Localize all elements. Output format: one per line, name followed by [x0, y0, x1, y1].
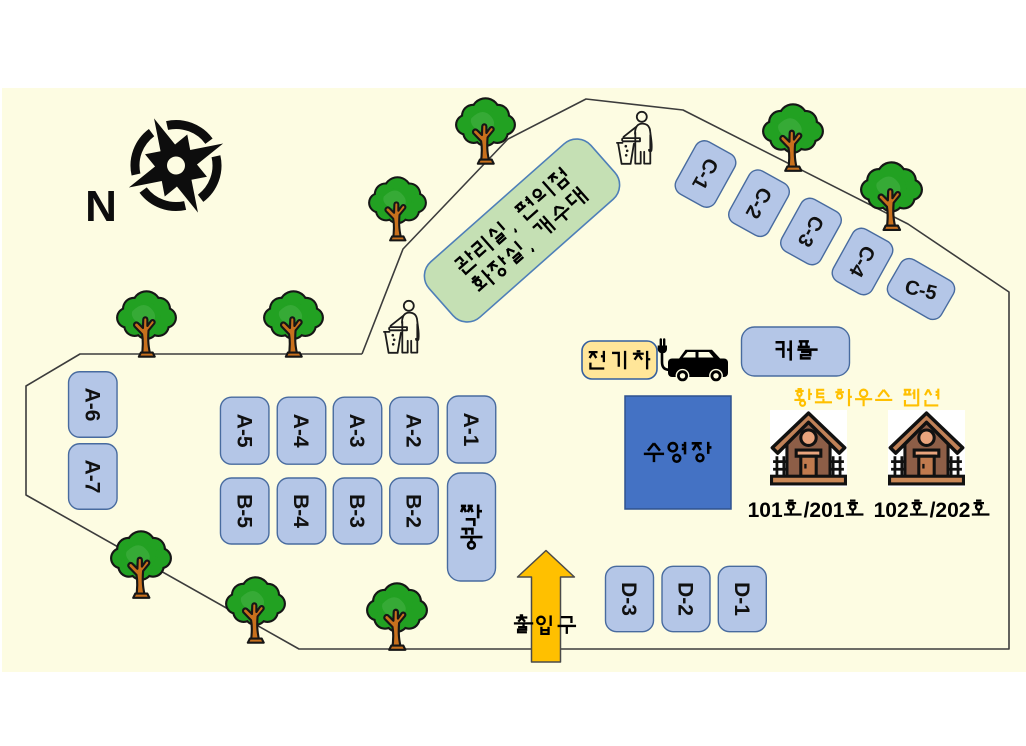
svg-text:A-6: A-6: [80, 388, 103, 422]
svg-text:B-2: B-2: [402, 494, 425, 528]
svg-text:D-2: D-2: [674, 582, 697, 616]
svg-text:D-3: D-3: [617, 582, 640, 616]
svg-text:A-5: A-5: [232, 414, 255, 448]
svg-text:/201: /201: [804, 499, 845, 522]
svg-text:N: N: [85, 182, 117, 231]
svg-text:A-1: A-1: [459, 413, 482, 447]
svg-text:102: 102: [874, 499, 909, 522]
svg-text:B-3: B-3: [345, 494, 368, 528]
svg-text:A-4: A-4: [289, 414, 312, 448]
svg-text:B-5: B-5: [232, 494, 255, 528]
svg-text:D-1: D-1: [730, 582, 753, 616]
svg-text:/202: /202: [930, 499, 971, 522]
svg-text:A-3: A-3: [345, 414, 368, 448]
svg-text:B-4: B-4: [289, 494, 312, 528]
svg-text:A-7: A-7: [80, 460, 103, 494]
svg-text:A-2: A-2: [402, 414, 425, 448]
svg-text:101: 101: [748, 499, 783, 522]
